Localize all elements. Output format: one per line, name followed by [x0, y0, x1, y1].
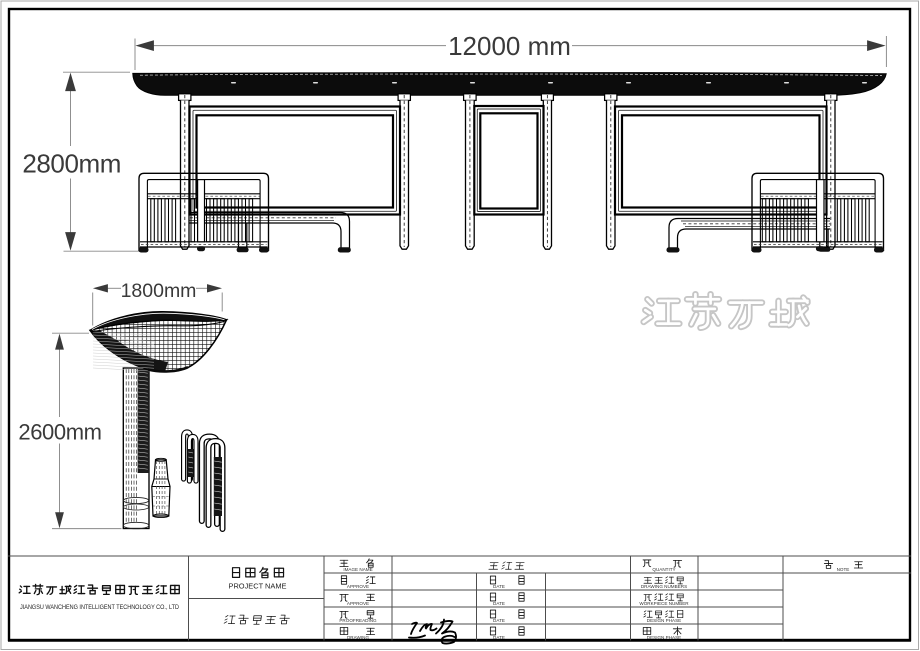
svg-text:DATE: DATE	[493, 584, 505, 589]
svg-text:QUANTITY: QUANTITY	[652, 567, 675, 572]
svg-text:JIANGSU WANCHENG INTELLIGENT T: JIANGSU WANCHENG INTELLIGENT TECHNOLOGY …	[20, 604, 180, 611]
svg-text:DRAWING NUMBERS: DRAWING NUMBERS	[641, 584, 687, 589]
svg-text:APPROVE: APPROVE	[347, 584, 369, 589]
svg-text:DESIGN PHASE: DESIGN PHASE	[647, 635, 681, 640]
svg-text:DATE: DATE	[493, 601, 505, 606]
svg-text:DATE: DATE	[493, 635, 505, 640]
svg-text:12000 mm: 12000 mm	[448, 31, 571, 61]
svg-text:NOTE: NOTE	[837, 567, 850, 572]
svg-text:IMAGE NAME: IMAGE NAME	[343, 567, 372, 572]
svg-text:1800mm: 1800mm	[121, 280, 197, 302]
svg-text:2600mm: 2600mm	[18, 419, 101, 444]
svg-text:DATE: DATE	[493, 618, 505, 623]
svg-text:PROJECT NAME: PROJECT NAME	[229, 581, 287, 590]
svg-text:DESIGN PHASE: DESIGN PHASE	[647, 618, 681, 623]
svg-text:WORKPIECE NUMBER: WORKPIECE NUMBER	[639, 601, 689, 606]
svg-text:2800mm: 2800mm	[22, 148, 121, 178]
svg-text:APPROVE: APPROVE	[347, 601, 369, 606]
svg-text:PROOFREADING: PROOFREADING	[339, 618, 377, 623]
svg-text:DRAWING: DRAWING	[347, 635, 369, 640]
